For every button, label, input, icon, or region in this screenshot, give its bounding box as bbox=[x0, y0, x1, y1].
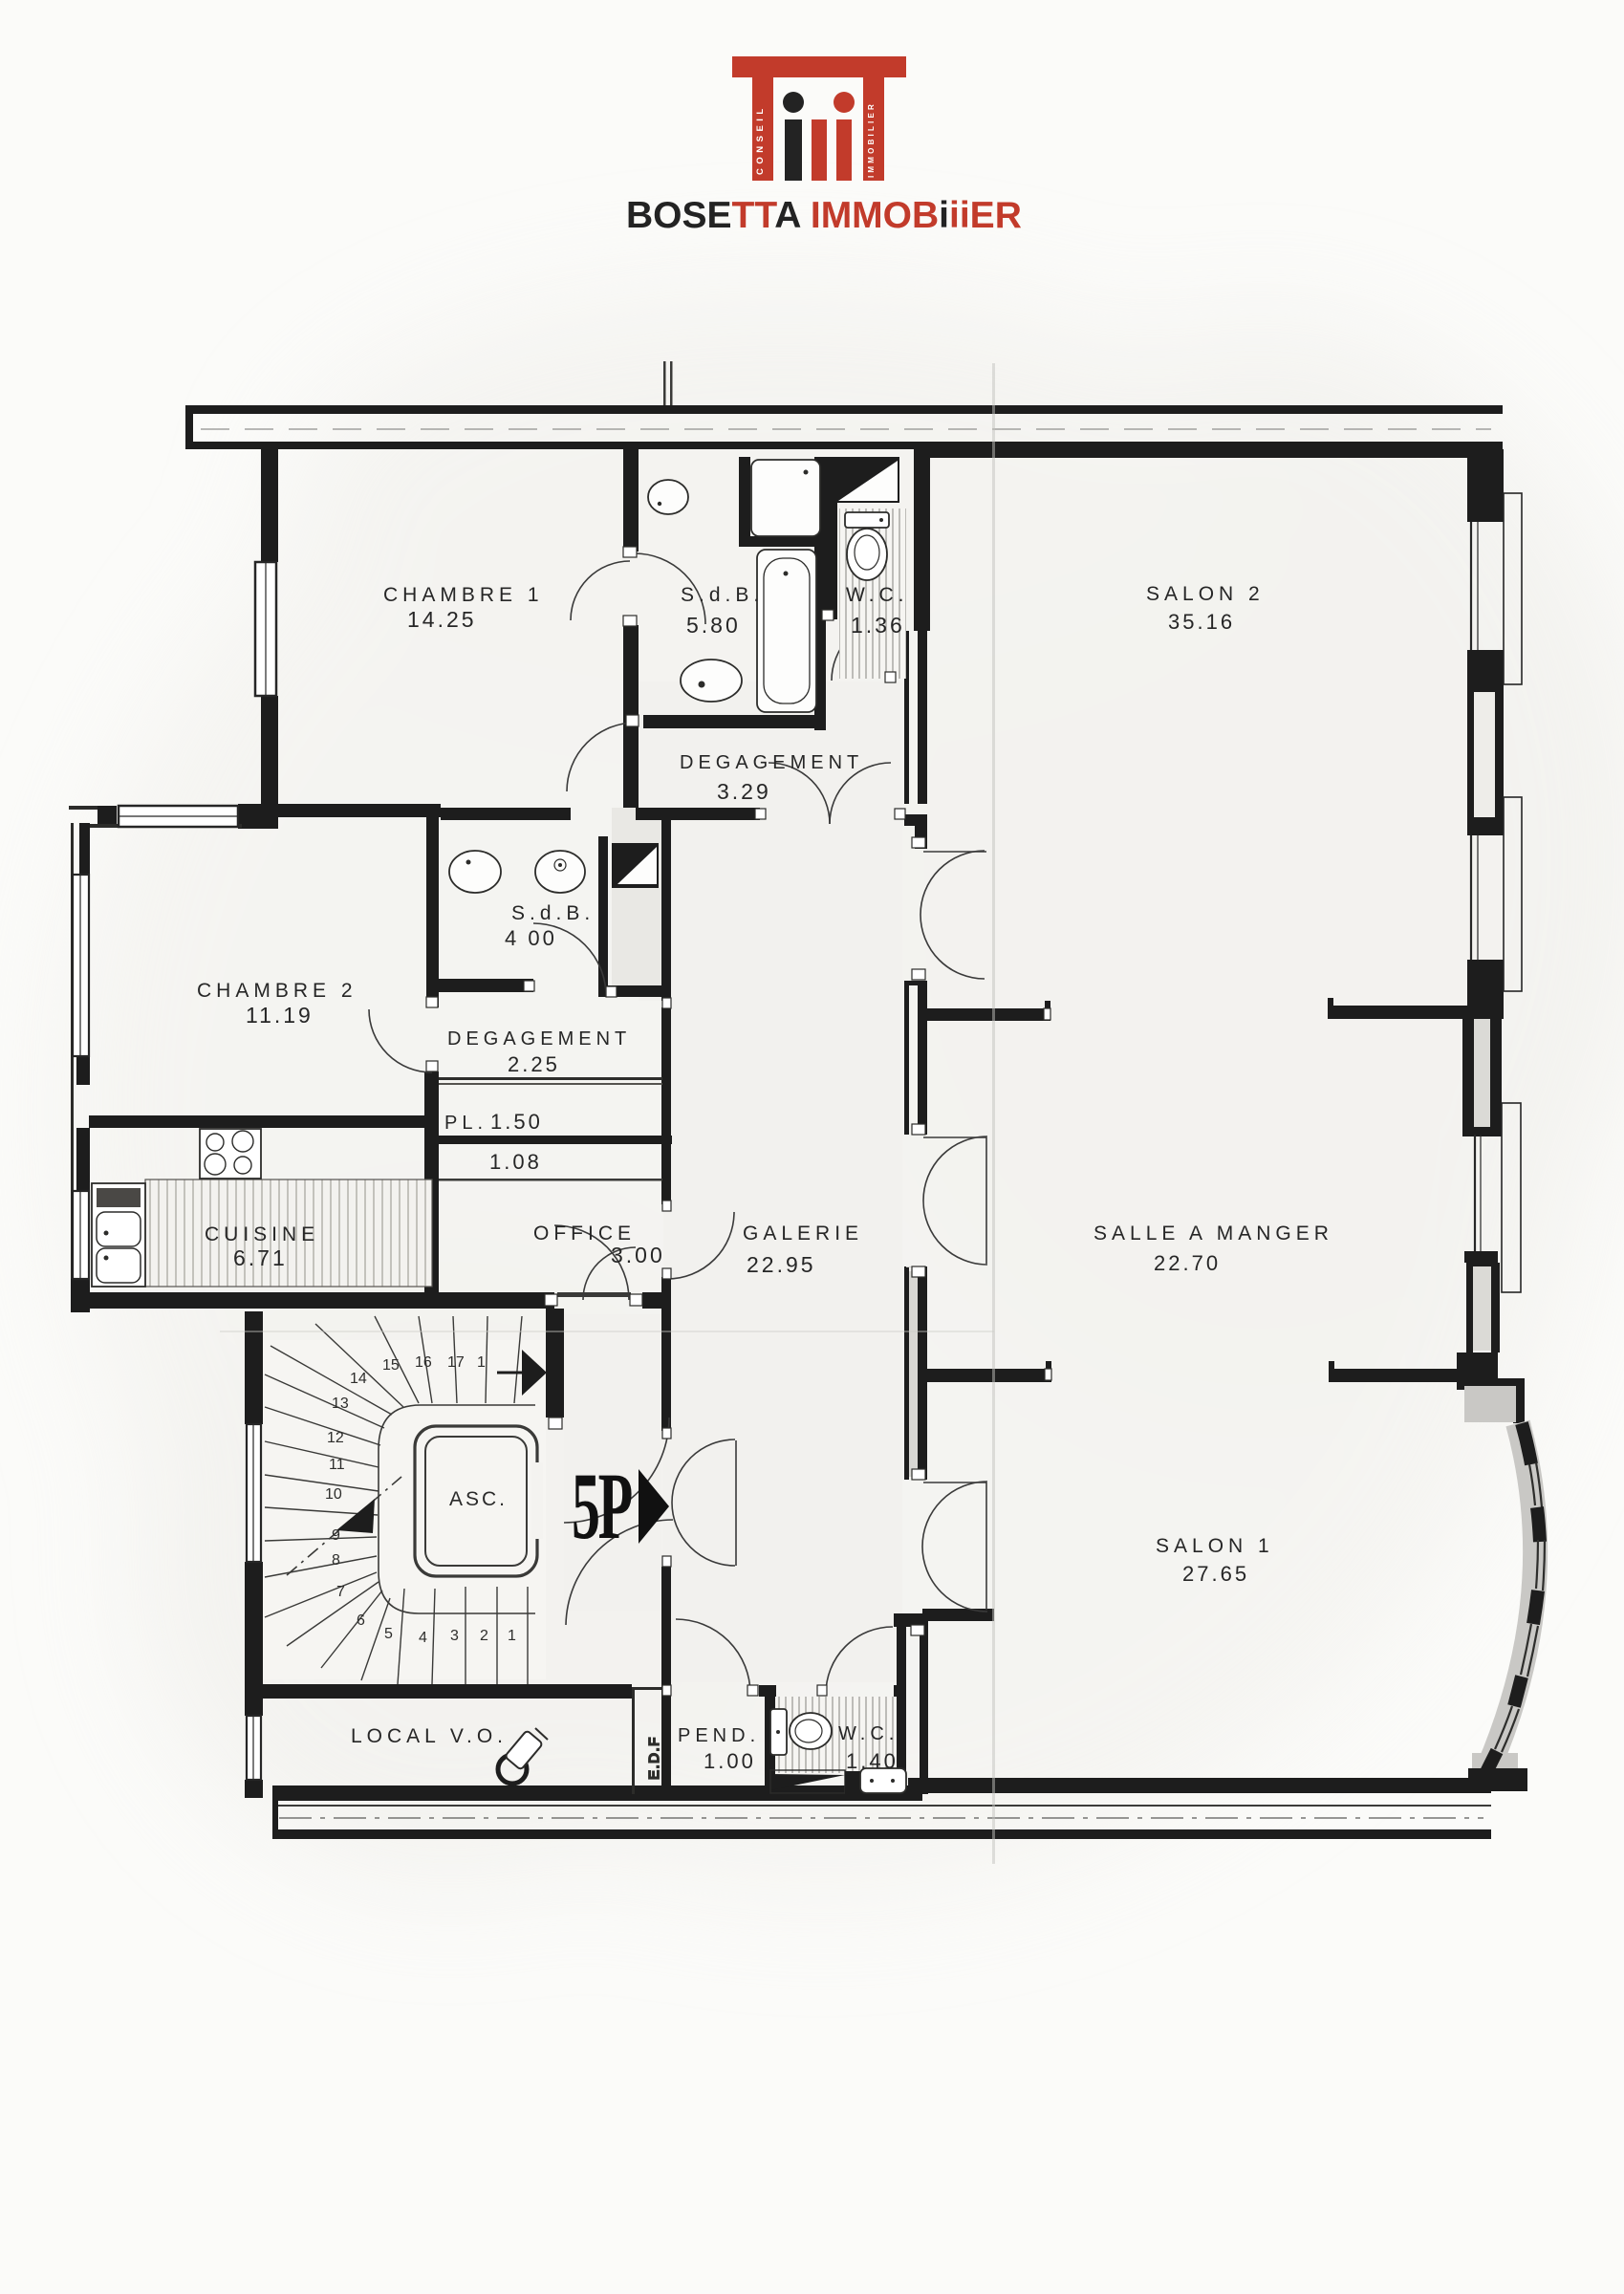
svg-text:15: 15 bbox=[382, 1357, 400, 1374]
svg-text:3.00: 3.00 bbox=[611, 1243, 665, 1267]
svg-text:14: 14 bbox=[350, 1371, 367, 1387]
svg-text:7: 7 bbox=[336, 1584, 345, 1600]
svg-text:6: 6 bbox=[357, 1612, 365, 1629]
svg-text:4 00: 4 00 bbox=[505, 926, 557, 950]
svg-text:5P: 5P bbox=[572, 1453, 632, 1558]
svg-text:22.95: 22.95 bbox=[747, 1252, 816, 1277]
svg-text:2.25: 2.25 bbox=[508, 1052, 560, 1076]
svg-text:1.36: 1.36 bbox=[851, 613, 905, 638]
svg-text:E.D.F: E.D.F bbox=[646, 1736, 662, 1780]
svg-text:17: 17 bbox=[447, 1354, 465, 1371]
svg-text:1: 1 bbox=[508, 1628, 516, 1644]
svg-text:IMMOBILIER: IMMOBILIER bbox=[867, 101, 876, 178]
svg-text:GALERIE: GALERIE bbox=[743, 1223, 863, 1244]
svg-text:1.40: 1.40 bbox=[846, 1749, 899, 1773]
svg-text:W.C.: W.C. bbox=[846, 584, 909, 606]
svg-text:ASC.: ASC. bbox=[449, 1488, 508, 1510]
svg-text:14.25: 14.25 bbox=[407, 607, 477, 632]
svg-text:10: 10 bbox=[325, 1486, 342, 1503]
svg-text:LOCAL V.O.: LOCAL V.O. bbox=[351, 1725, 508, 1747]
svg-text:11: 11 bbox=[329, 1457, 345, 1473]
svg-text:5: 5 bbox=[384, 1626, 393, 1642]
svg-text:3: 3 bbox=[450, 1628, 459, 1644]
svg-text:SALLE A MANGER: SALLE A MANGER bbox=[1093, 1223, 1333, 1244]
svg-text:DEGAGEMENT: DEGAGEMENT bbox=[680, 752, 863, 773]
svg-text:S.d.B.: S.d.B. bbox=[511, 902, 595, 924]
svg-text:BOSETTA IMMOBiiiER: BOSETTA IMMOBiiiER bbox=[626, 195, 1022, 236]
svg-text:1.00: 1.00 bbox=[704, 1749, 756, 1773]
svg-text:11.19: 11.19 bbox=[246, 1003, 314, 1028]
svg-text:9: 9 bbox=[332, 1527, 340, 1544]
svg-text:13: 13 bbox=[332, 1396, 349, 1412]
svg-text:22.70: 22.70 bbox=[1154, 1251, 1221, 1275]
svg-text:6.71: 6.71 bbox=[233, 1245, 288, 1270]
svg-text:1.50: 1.50 bbox=[490, 1110, 543, 1134]
svg-text:CHAMBRE 2: CHAMBRE 2 bbox=[197, 980, 357, 1002]
svg-text:27.65: 27.65 bbox=[1182, 1562, 1249, 1586]
svg-text:1.08: 1.08 bbox=[489, 1150, 542, 1174]
svg-text:OFFICE: OFFICE bbox=[533, 1223, 636, 1244]
svg-text:1: 1 bbox=[477, 1354, 486, 1371]
svg-text:SALON 2: SALON 2 bbox=[1146, 583, 1265, 605]
svg-text:CHAMBRE 1: CHAMBRE 1 bbox=[383, 584, 544, 606]
svg-text:CUISINE: CUISINE bbox=[205, 1223, 319, 1245]
svg-text:5.80: 5.80 bbox=[686, 613, 741, 638]
svg-text:12: 12 bbox=[327, 1430, 344, 1446]
svg-text:W.C.: W.C. bbox=[838, 1723, 899, 1744]
svg-text:CONSEIL: CONSEIL bbox=[755, 104, 766, 175]
svg-text:3.29: 3.29 bbox=[717, 779, 771, 804]
svg-text:16: 16 bbox=[415, 1354, 432, 1371]
svg-text:DEGAGEMENT: DEGAGEMENT bbox=[447, 1028, 631, 1050]
svg-text:PEND.: PEND. bbox=[678, 1725, 760, 1746]
svg-text:SALON 1: SALON 1 bbox=[1156, 1535, 1274, 1557]
svg-text:S.d.B.: S.d.B. bbox=[681, 584, 764, 606]
svg-text:4: 4 bbox=[419, 1630, 427, 1646]
svg-text:2: 2 bbox=[480, 1628, 488, 1644]
svg-text:35.16: 35.16 bbox=[1168, 610, 1235, 634]
svg-text:8: 8 bbox=[332, 1552, 340, 1569]
svg-text:PL.: PL. bbox=[444, 1113, 487, 1134]
